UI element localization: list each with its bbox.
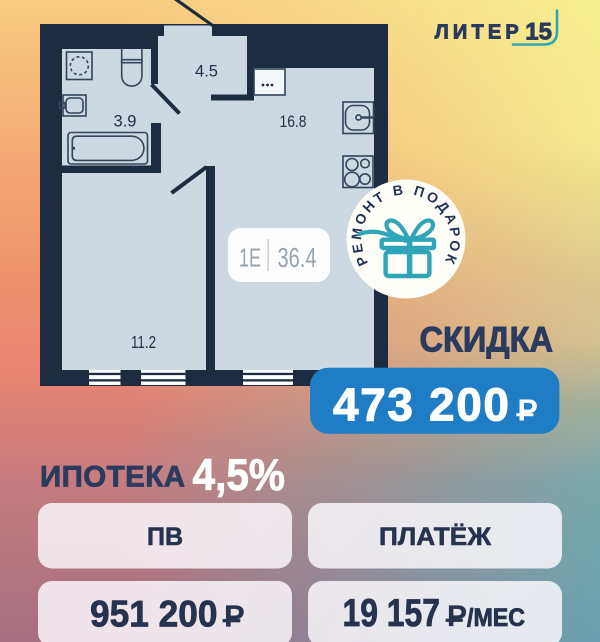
svg-text:ПВ: ПВ	[147, 523, 183, 551]
svg-text:4.5: 4.5	[195, 63, 218, 81]
svg-text:19 157: 19 157	[343, 592, 441, 635]
svg-text:ЛИТЕР: ЛИТЕР	[435, 21, 519, 43]
svg-text:СКИДКА: СКИДКА	[420, 321, 554, 360]
svg-text:16.8: 16.8	[280, 113, 307, 131]
svg-text:473 200: 473 200	[333, 379, 509, 431]
svg-text:/МЕС: /МЕС	[467, 604, 525, 632]
svg-text:ИПОТЕКА: ИПОТЕКА	[40, 461, 185, 494]
svg-text:951 200: 951 200	[90, 594, 218, 635]
svg-text:ПЛАТЁЖ: ПЛАТЁЖ	[379, 523, 491, 551]
svg-text:11.2: 11.2	[131, 332, 156, 352]
svg-text:4,5%: 4,5%	[193, 451, 286, 500]
svg-text:36.4: 36.4	[278, 242, 317, 273]
svg-text:3.9: 3.9	[114, 113, 137, 131]
svg-text:15: 15	[525, 19, 552, 46]
svg-text:1E: 1E	[239, 243, 261, 273]
